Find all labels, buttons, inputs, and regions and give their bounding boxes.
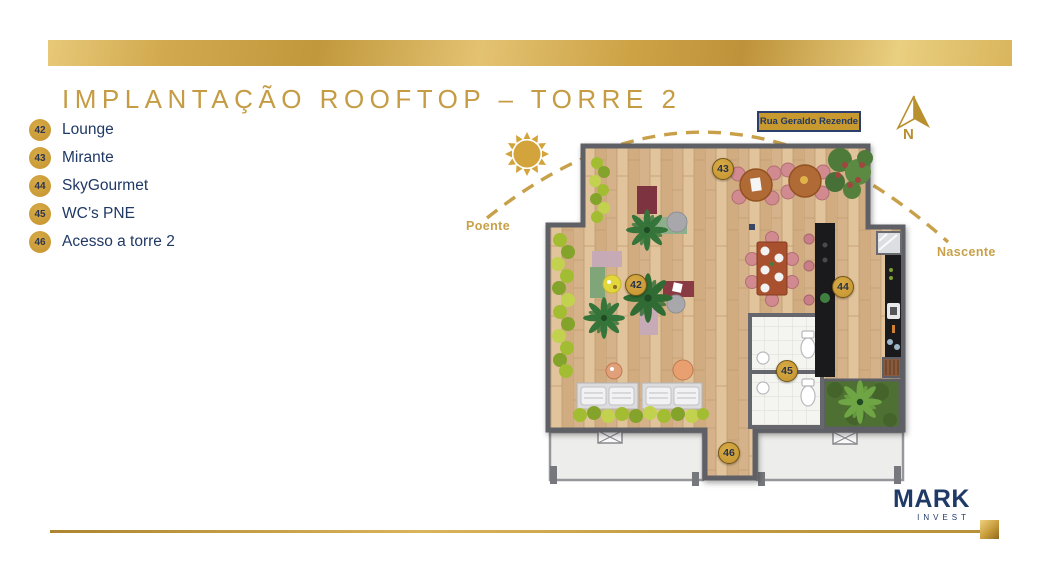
logo: MARK INVEST (882, 487, 970, 522)
glass-table (877, 232, 901, 254)
legend-label-wcs-pne: WC’s PNE (62, 205, 135, 223)
legend-label-skygourmet: SkyGourmet (62, 177, 148, 195)
legend-badge-42: 42 (29, 119, 51, 141)
logo-mark-text: MARK (882, 487, 970, 512)
slide-canvas: IMPLANTAÇÃO ROOFTOP – TORRE 2 42 Lounge … (0, 0, 1060, 577)
legend-badge-45: 45 (29, 203, 51, 225)
legend: 42 Lounge 43 Mirante 44 SkyGourmet 45 WC… (29, 119, 175, 259)
plan-marker-44-skygourmet: 44 (832, 276, 854, 298)
grass-area (824, 380, 900, 428)
kitchen-counter (885, 255, 901, 357)
logo-invest-text: INVEST (882, 513, 970, 522)
legend-label-lounge: Lounge (62, 121, 114, 139)
legend-item-acesso-torre: 46 Acesso a torre 2 (29, 231, 175, 253)
plan-marker-42-lounge: 42 (625, 274, 647, 296)
plan-marker-46-acesso: 46 (718, 442, 740, 464)
legend-badge-43: 43 (29, 147, 51, 169)
legend-item-mirante: 43 Mirante (29, 147, 175, 169)
legend-badge-46: 46 (29, 231, 51, 253)
floorplan (540, 130, 940, 490)
legend-badge-44: 44 (29, 175, 51, 197)
legend-item-wcs-pne: 45 WC’s PNE (29, 203, 175, 225)
street-label: Rua Geraldo Rezende (757, 111, 861, 132)
kitchen-island (815, 223, 835, 377)
grill (883, 358, 901, 377)
poente-label: Poente (466, 219, 510, 233)
plan-marker-45-wc: 45 (776, 360, 798, 382)
legend-item-lounge: 42 Lounge (29, 119, 175, 141)
legend-label-mirante: Mirante (62, 149, 114, 167)
north-arrow-icon (898, 96, 930, 128)
gold-bottom-line (50, 530, 980, 533)
legend-label-acesso-torre: Acesso a torre 2 (62, 233, 175, 251)
nascente-label: Nascente (937, 245, 996, 259)
gold-bottom-square (980, 520, 999, 539)
legend-item-skygourmet: 44 SkyGourmet (29, 175, 175, 197)
plan-marker-43-mirante: 43 (712, 158, 734, 180)
